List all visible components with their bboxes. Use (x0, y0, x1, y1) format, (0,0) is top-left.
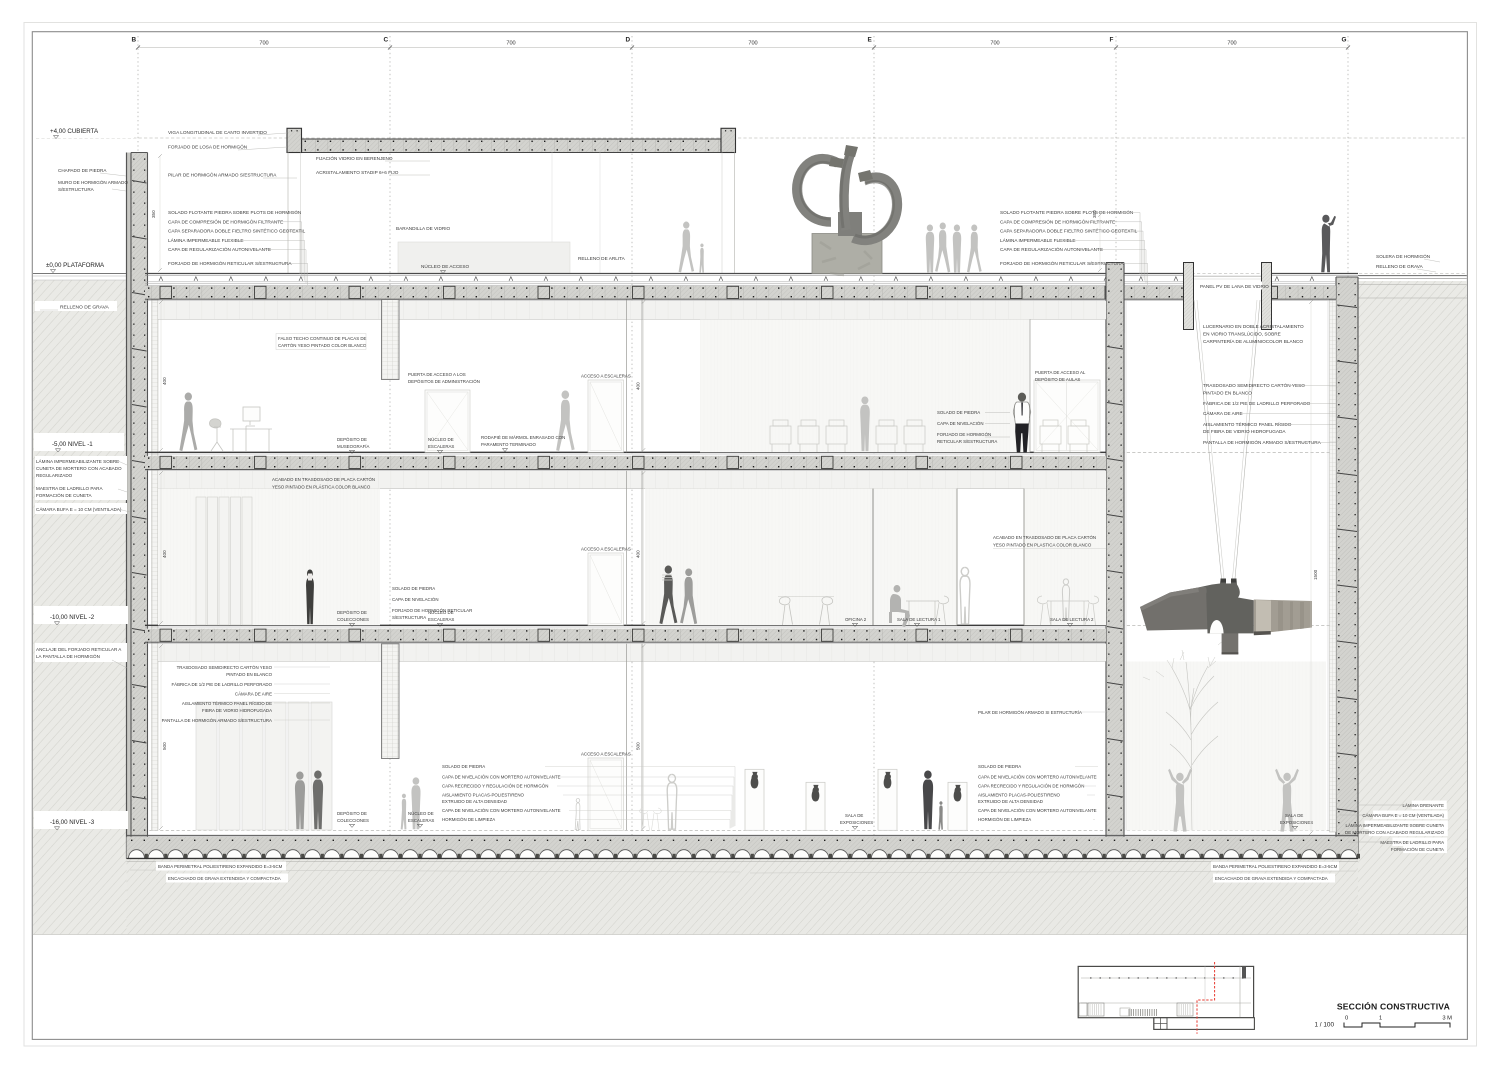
svg-text:SALA DE: SALA DE (1285, 813, 1303, 818)
svg-text:-5,00 NIVEL -1: -5,00 NIVEL -1 (52, 441, 93, 448)
svg-text:PINTADO EN BLANCO: PINTADO EN BLANCO (1203, 391, 1252, 396)
svg-text:SOLADO DE PIEDRA: SOLADO DE PIEDRA (442, 764, 485, 769)
svg-text:RETICULAR S/ESTRUCTURA: RETICULAR S/ESTRUCTURA (937, 439, 997, 444)
svg-text:YESO PINTADO EN PLASTICA COLOR: YESO PINTADO EN PLASTICA COLOR BLANCO (993, 543, 1092, 548)
svg-text:SALA DE: SALA DE (845, 813, 863, 818)
svg-text:CAPA SEPARADORA DOBLE FIELTRO: CAPA SEPARADORA DOBLE FIELTRO SINTÉTICO … (168, 228, 306, 234)
svg-text:PUERTA DE ACCESO AL: PUERTA DE ACCESO AL (1035, 370, 1086, 375)
svg-text:PANTALLA DE HORMIGÓN ARMADO S: PANTALLA DE HORMIGÓN ARMADO S/ESTRUCTURA (1203, 439, 1322, 445)
svg-text:-16,00 NIVEL -3: -16,00 NIVEL -3 (50, 819, 95, 826)
svg-text:CARTÓN YESO PINTADO COLOR BLAN: CARTÓN YESO PINTADO COLOR BLANCO (278, 343, 367, 348)
svg-text:TRASDOSADO SEMIDIRECTO CARTÓN: TRASDOSADO SEMIDIRECTO CARTÓN YESO (1203, 382, 1305, 388)
svg-text:C: C (384, 37, 389, 44)
svg-text:ACCESO A ESCALERAS: ACCESO A ESCALERAS (581, 547, 631, 552)
svg-text:D: D (626, 37, 631, 44)
svg-text:COLECCIONES: COLECCIONES (337, 818, 369, 823)
svg-text:SECCIÓN CONSTRUCTIVA: SECCIÓN CONSTRUCTIVA (1337, 1001, 1450, 1012)
svg-text:400: 400 (636, 550, 641, 558)
svg-text:SOLADO FLOTANTE PIEDRA SOBRE P: SOLADO FLOTANTE PIEDRA SOBRE PLOTS DE HO… (1000, 209, 1133, 215)
svg-text:AISLAMIENTO TÉRMICO PANEL RÍGI: AISLAMIENTO TÉRMICO PANEL RÍGIDO DE (182, 701, 272, 706)
svg-text:±0,00 PLATAFORMA: ±0,00 PLATAFORMA (46, 262, 105, 269)
svg-text:CAPA DE NIVELACIÓN CON MORTERO: CAPA DE NIVELACIÓN CON MORTERO AUTONIVEL… (442, 775, 561, 780)
svg-text:RELLENO DE ARLITA: RELLENO DE ARLITA (578, 256, 626, 261)
svg-text:ENCACHADO DE GRAVA EXTENDIDA Y: ENCACHADO DE GRAVA EXTENDIDA Y COMPACTAD… (1215, 876, 1328, 881)
svg-text:EXPOSICIONES: EXPOSICIONES (840, 820, 873, 825)
svg-text:ACABADO EN TRASDOSADO DE PLACA: ACABADO EN TRASDOSADO DE PLACA CARTÓN (272, 477, 375, 482)
svg-text:EN VIDRIO TRANSLÚCIDO, SOBRE: EN VIDRIO TRANSLÚCIDO, SOBRE (1203, 331, 1281, 337)
svg-text:ACRISTALAMIENTO STADIP 6+6 FIJ: ACRISTALAMIENTO STADIP 6+6 FIJO (316, 170, 399, 175)
svg-text:DEPÓSITO DE: DEPÓSITO DE (337, 437, 367, 442)
svg-text:CAPA RECRECIDO Y REGULACIÓN DE: CAPA RECRECIDO Y REGULACIÓN DE HORMIGÓN (442, 784, 548, 789)
svg-text:500: 500 (162, 742, 167, 750)
svg-text:SALA DE LECTURA 2: SALA DE LECTURA 2 (1050, 617, 1094, 622)
svg-text:CARPINTERÍA DE ALUMINIOCOLOR B: CARPINTERÍA DE ALUMINIOCOLOR BLANCO (1203, 338, 1303, 344)
svg-text:NÚCLEO DE: NÚCLEO DE (428, 610, 454, 615)
svg-text:NÚCLEO DE: NÚCLEO DE (408, 811, 434, 816)
svg-text:F: F (1110, 37, 1114, 44)
svg-text:COLECCIONES: COLECCIONES (337, 617, 369, 622)
svg-text:DEPÓSITO DE: DEPÓSITO DE (337, 811, 367, 816)
svg-text:FORJADO DE LOSA DE HORMIGÓN: FORJADO DE LOSA DE HORMIGÓN (168, 144, 247, 150)
svg-text:BANDA PERIMETRAL POLIESTIRENO: BANDA PERIMETRAL POLIESTIRENO EXPANDIDO … (158, 864, 283, 869)
svg-text:HORMIGÓN DE LIMPIEZA: HORMIGÓN DE LIMPIEZA (978, 817, 1031, 822)
svg-text:PANTALLA DE HORMIGÓN ARMADO S: PANTALLA DE HORMIGÓN ARMADO S/ESTRUCTURA (162, 718, 272, 723)
svg-text:CAPA SEPARADORA DOBLE FIELTRO: CAPA SEPARADORA DOBLE FIELTRO SINTÉTICO … (1000, 228, 1138, 234)
svg-text:AISLAMIENTO PLACAS-POLIESTIREN: AISLAMIENTO PLACAS-POLIESTIRENO (978, 793, 1060, 798)
svg-text:CAPA DE NIVELACIÓN CON MORTERO: CAPA DE NIVELACIÓN CON MORTERO AUTONIVEL… (442, 808, 561, 813)
svg-text:DEPÓSITO DE: DEPÓSITO DE (337, 610, 367, 615)
svg-text:CÁMARA BUFA E = 10 CM (VENTILA: CÁMARA BUFA E = 10 CM (VENTILADA) (1362, 813, 1444, 818)
svg-text:SOLERA DE HORMIGÓN: SOLERA DE HORMIGÓN (1376, 253, 1430, 259)
svg-text:PUERTA DE ACCESO A LOS: PUERTA DE ACCESO A LOS (408, 372, 466, 377)
svg-text:EXPOSICIONES: EXPOSICIONES (1280, 820, 1313, 825)
svg-text:FIBRA DE VIDRIO HIDROFUGADA: FIBRA DE VIDRIO HIDROFUGADA (202, 708, 272, 713)
svg-text:350: 350 (1092, 210, 1097, 218)
svg-text:400: 400 (636, 382, 641, 390)
svg-text:CHAPADO DE PIEDRA: CHAPADO DE PIEDRA (58, 168, 107, 173)
svg-text:1500: 1500 (1313, 569, 1318, 580)
svg-text:LUCERNARIO EN DOBLE ACRISTALAM: LUCERNARIO EN DOBLE ACRISTALAMIENTO (1203, 324, 1304, 329)
svg-text:FORJADO DE HORMIGÓN: FORJADO DE HORMIGÓN (937, 432, 991, 437)
svg-text:AISLAMIENTO TÉRMICO PANEL RÍGI: AISLAMIENTO TÉRMICO PANEL RÍGIDO (1203, 421, 1292, 427)
svg-text:RODAPIÉ DE MÁRMOL ENRASADO CON: RODAPIÉ DE MÁRMOL ENRASADO CON (481, 435, 565, 440)
svg-text:LÁMINA IMPERMEABLE FLEXIBLE: LÁMINA IMPERMEABLE FLEXIBLE (168, 237, 244, 243)
svg-text:ESCALERAS: ESCALERAS (428, 617, 454, 622)
svg-text:0: 0 (1345, 1016, 1348, 1022)
svg-text:BARANDILLA DE VIDRIO: BARANDILLA DE VIDRIO (396, 226, 451, 231)
svg-text:ENCACHADO DE GRAVA EXTENDIDA Y: ENCACHADO DE GRAVA EXTENDIDA Y COMPACTAD… (168, 876, 281, 881)
svg-text:3 M: 3 M (1442, 1016, 1452, 1022)
svg-text:700: 700 (259, 41, 268, 47)
svg-text:CAPA DE REGULARIZACIÓN AUTONIV: CAPA DE REGULARIZACIÓN AUTONIVELANTE (1000, 246, 1103, 252)
svg-text:EXTRUIDO DE ALTA DENSIDAD: EXTRUIDO DE ALTA DENSIDAD (978, 799, 1043, 804)
svg-text:FALSO TECHO CONTINUO DE PLACAS: FALSO TECHO CONTINUO DE PLACAS DE (278, 336, 367, 341)
svg-text:B: B (132, 37, 137, 44)
svg-text:-10,00 NIVEL -2: -10,00 NIVEL -2 (50, 614, 95, 621)
svg-text:700: 700 (990, 41, 999, 47)
svg-text:+4,00 CUBIERTA: +4,00 CUBIERTA (50, 128, 99, 135)
svg-text:FORJADO DE HORMIGÓN RETICULAR: FORJADO DE HORMIGÓN RETICULAR S/ESTRUCTU… (168, 260, 292, 266)
svg-text:S/ESTRUCTURA: S/ESTRUCTURA (58, 187, 95, 192)
svg-text:FORMACIÓN DE CUNETA: FORMACIÓN DE CUNETA (36, 492, 92, 498)
svg-text:ANCLAJE DEL FORJADO RETICULAR: ANCLAJE DEL FORJADO RETICULAR A (36, 647, 122, 652)
svg-text:LÁMINA IMPERMEABILIZANTE SOBRE: LÁMINA IMPERMEABILIZANTE SOBRE (36, 458, 119, 464)
svg-text:DE FIBRA DE VIDRIO HIDROFUGADA: DE FIBRA DE VIDRIO HIDROFUGADA (1203, 429, 1286, 434)
svg-text:DEPÓSITOS DE ADMINISTRACIÓN: DEPÓSITOS DE ADMINISTRACIÓN (408, 379, 480, 384)
svg-text:CUNETA DE MORTERO CON ACABADO: CUNETA DE MORTERO CON ACABADO (36, 466, 122, 471)
svg-text:500: 500 (636, 742, 641, 750)
svg-text:MAESTRA DE LADRILLO PARA: MAESTRA DE LADRILLO PARA (1380, 840, 1444, 845)
svg-text:CÁMARA DE AIRE: CÁMARA DE AIRE (235, 692, 272, 697)
svg-text:PINTADO EN BLANCO: PINTADO EN BLANCO (226, 672, 272, 677)
svg-text:BANDA PERIMETRAL POLIESTIRENO: BANDA PERIMETRAL POLIESTIRENO EXPANDIDO … (1213, 864, 1338, 869)
svg-text:PILAR DE HORMIGÓN ARMADO SI E: PILAR DE HORMIGÓN ARMADO SI ESTRUCTURÍA (978, 710, 1082, 715)
svg-text:DEPÓSITO DE AULAS: DEPÓSITO DE AULAS (1035, 377, 1080, 382)
svg-text:E: E (868, 37, 873, 44)
svg-text:ACABADO EN TRASDOSADO DE PLACA: ACABADO EN TRASDOSADO DE PLACA CARTÓN (993, 535, 1096, 540)
svg-text:700: 700 (1227, 41, 1236, 47)
svg-text:CAPA DE NIVELACIÓN: CAPA DE NIVELACIÓN (392, 597, 439, 602)
svg-text:CÁMARA DE AIRE: CÁMARA DE AIRE (1203, 410, 1243, 416)
svg-text:RELLENO DE GRAVA: RELLENO DE GRAVA (1376, 264, 1424, 269)
svg-text:MUSEOGRAFÍA: MUSEOGRAFÍA (337, 444, 370, 449)
svg-text:1: 1 (1379, 1016, 1382, 1022)
svg-text:NÚCLEO DE ACCESO: NÚCLEO DE ACCESO (421, 263, 470, 269)
svg-text:MAESTRA DE LADRILLO PARA: MAESTRA DE LADRILLO PARA (36, 486, 103, 491)
svg-text:700: 700 (748, 41, 757, 47)
svg-text:SALA DE LECTURA 1: SALA DE LECTURA 1 (897, 617, 941, 622)
svg-text:PANEL PV DE LANA DE VIDRIO: PANEL PV DE LANA DE VIDRIO (1200, 284, 1269, 289)
svg-text:1 / 100: 1 / 100 (1314, 1022, 1334, 1029)
svg-text:350: 350 (151, 210, 156, 218)
svg-text:ACCESO A ESCALERAS: ACCESO A ESCALERAS (581, 752, 631, 757)
svg-text:CAPA DE NIVELACIÓN: CAPA DE NIVELACIÓN (937, 421, 984, 426)
svg-text:SOLADO DE PIEDRA: SOLADO DE PIEDRA (978, 764, 1021, 769)
svg-text:LÁMINA IMPERMEABILIZANTE SOBRE: LÁMINA IMPERMEABILIZANTE SOBRE CUNETA (1346, 823, 1445, 828)
svg-text:DE MORTERO CON ACABADO REGULAR: DE MORTERO CON ACABADO REGULARIZADO (1345, 830, 1445, 835)
svg-text:LÁMINA DRENANTE: LÁMINA DRENANTE (1403, 803, 1445, 808)
svg-text:FORJADO DE HORMIGÓN RETICULAR: FORJADO DE HORMIGÓN RETICULAR S/ESTRUCTU… (1000, 260, 1124, 266)
svg-text:CAPA DE NIVELACIÓN CON MORTERO: CAPA DE NIVELACIÓN CON MORTERO AUTONIVEL… (978, 775, 1097, 780)
svg-text:CÁMARA BUFA E = 10 CM (VENTILA: CÁMARA BUFA E = 10 CM (VENTILADA) (36, 506, 122, 512)
svg-text:SOLADO DE PIEDRA: SOLADO DE PIEDRA (937, 410, 980, 415)
svg-text:ESCALERAS: ESCALERAS (428, 444, 454, 449)
svg-text:REGULARIZADO: REGULARIZADO (36, 473, 73, 478)
svg-text:400: 400 (162, 377, 167, 385)
svg-text:G: G (1342, 37, 1347, 44)
svg-text:700: 700 (506, 41, 515, 47)
svg-text:NÚCLEO DE: NÚCLEO DE (428, 437, 454, 442)
svg-text:TRASDOSADO SEMIDIRECTO CARTÓN: TRASDOSADO SEMIDIRECTO CARTÓN YESO (177, 665, 273, 670)
svg-text:LA PANTALLA DE HORMIGÓN: LA PANTALLA DE HORMIGÓN (36, 653, 100, 659)
svg-text:RELLENO DE GRAVA: RELLENO DE GRAVA (60, 305, 109, 311)
svg-text:LÁMINA IMPERMEABLE FLEXIBLE: LÁMINA IMPERMEABLE FLEXIBLE (1000, 237, 1076, 243)
svg-text:CAPA DE COMPRESIÓN DE HORMIGÓN: CAPA DE COMPRESIÓN DE HORMIGÓN FILTRANTE (1000, 218, 1115, 224)
svg-text:AISLAMIENTO PLACAS-POLIESTIREN: AISLAMIENTO PLACAS-POLIESTIRENO (442, 793, 524, 798)
svg-text:FORMACIÓN DE CUNETA: FORMACIÓN DE CUNETA (1391, 847, 1444, 852)
svg-text:CAPA DE COMPRESIÓN DE HORMIGÓN: CAPA DE COMPRESIÓN DE HORMIGÓN FILTRANTE (168, 218, 283, 224)
svg-text:SOLADO FLOTANTE PIEDRA SOBRE P: SOLADO FLOTANTE PIEDRA SOBRE PLOTS DE HO… (168, 209, 301, 215)
svg-text:ACCESO A ESCALERAS: ACCESO A ESCALERAS (581, 374, 631, 379)
svg-text:OFICINA 2: OFICINA 2 (845, 617, 867, 622)
svg-text:MURO DE HORMIGÓN ARMADO: MURO DE HORMIGÓN ARMADO (58, 179, 128, 185)
svg-text:EXTRUIDO DE ALTA DENSIDAD: EXTRUIDO DE ALTA DENSIDAD (442, 799, 507, 804)
svg-text:ESCALERAS: ESCALERAS (408, 818, 434, 823)
svg-text:FÁBRICA DE 1/2 PIE DE LADRILLO: FÁBRICA DE 1/2 PIE DE LADRILLO PERFORADO (171, 682, 272, 687)
svg-text:FÁBRICA DE 1/2 PIE DE LADRILLO: FÁBRICA DE 1/2 PIE DE LADRILLO PERFORADO (1203, 400, 1311, 406)
svg-text:PARAMENTO TERMINADO: PARAMENTO TERMINADO (481, 442, 536, 447)
svg-text:SOLADO DE PIEDRA: SOLADO DE PIEDRA (392, 586, 435, 591)
svg-text:VIGA LONGITUDINAL DE CANTO INV: VIGA LONGITUDINAL DE CANTO INVERTIDO (168, 130, 267, 135)
svg-text:FIJACIÓN VIDRIO EN BERENJENO: FIJACIÓN VIDRIO EN BERENJENO (316, 155, 393, 161)
svg-text:CAPA RECRECIDO Y REGULACIÓN DE: CAPA RECRECIDO Y REGULACIÓN DE HORMIGÓN (978, 784, 1084, 789)
svg-text:YESO PINTADO EN PLÁSTICA COLOR: YESO PINTADO EN PLÁSTICA COLOR BLANCO (272, 485, 371, 490)
svg-text:CAPA DE REGULARIZACIÓN AUTONIV: CAPA DE REGULARIZACIÓN AUTONIVELANTE (168, 246, 271, 252)
svg-text:HORMIGÓN DE LIMPIEZA: HORMIGÓN DE LIMPIEZA (442, 817, 495, 822)
svg-text:400: 400 (162, 550, 167, 558)
svg-text:CAPA DE NIVELACIÓN CON MORTERO: CAPA DE NIVELACIÓN CON MORTERO AUTONIVEL… (978, 808, 1097, 813)
svg-text:PILAR DE HORMIGÓN ARMADO S/EST: PILAR DE HORMIGÓN ARMADO S/ESTRUCTURA (168, 172, 277, 178)
svg-text:S/ESTRUCTURA: S/ESTRUCTURA (392, 615, 426, 620)
